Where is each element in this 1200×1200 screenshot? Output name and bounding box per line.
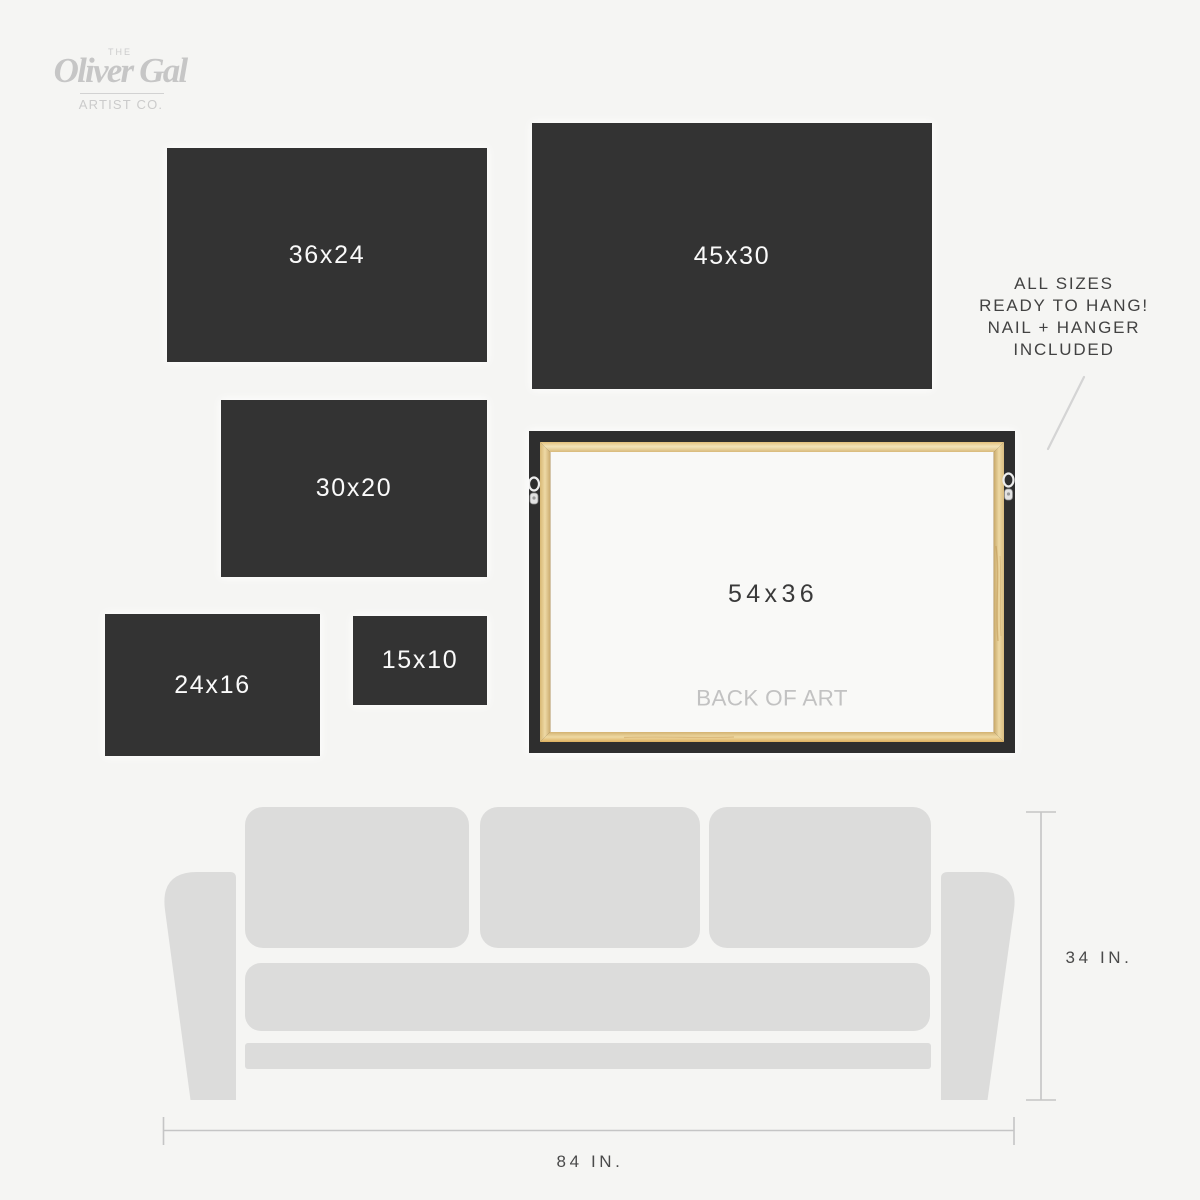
svg-text:BACK OF ART: BACK OF ART <box>696 686 848 711</box>
svg-text:54x36: 54x36 <box>728 580 818 608</box>
